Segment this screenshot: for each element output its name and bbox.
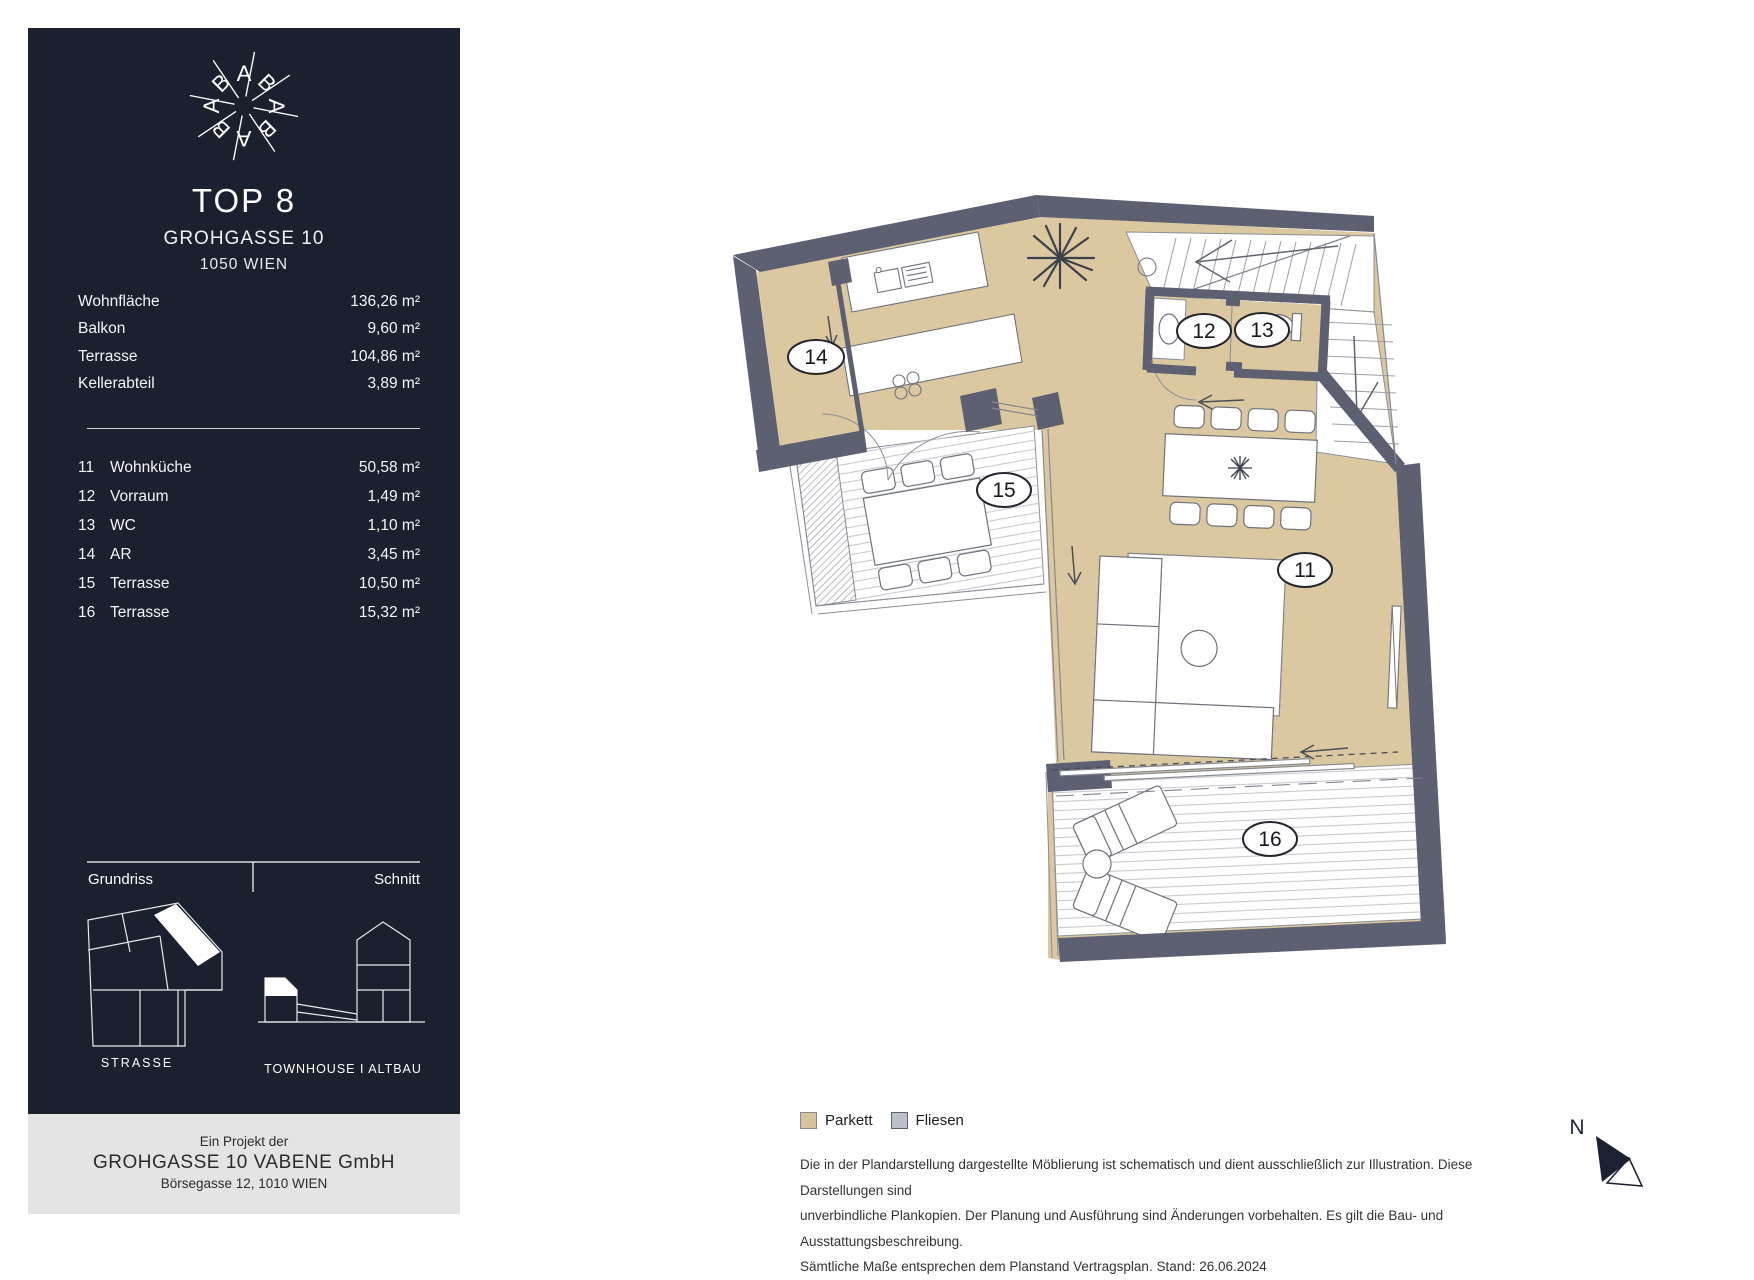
- north-label: N: [1569, 1116, 1584, 1139]
- room-label: Terrasse: [110, 604, 359, 622]
- table-row: 11 Wohnküche 50,58 m²: [78, 453, 420, 482]
- room-tag-11: 11: [1294, 559, 1316, 582]
- room-number: 12: [78, 488, 110, 506]
- room-number: 11: [78, 459, 110, 477]
- table-row: Kellerabteil 3,89 m²: [78, 371, 420, 399]
- washbasin-icon: [1159, 314, 1179, 344]
- room-value: 15,32 m²: [359, 604, 420, 622]
- vabene-logo-icon: A B A B A B A B: [186, 48, 302, 164]
- townhouse-altbau-label: TOWNHOUSE I ALTBAU: [264, 1062, 422, 1076]
- room-value: 3,45 m²: [367, 546, 420, 564]
- room-number: 15: [78, 575, 110, 593]
- room-value: 1,49 m²: [367, 488, 420, 506]
- area-label: Balkon: [78, 320, 367, 338]
- floor-plan: 14 12 13 15 11 16: [600, 150, 1480, 1030]
- room-label: Wohnküche: [110, 459, 359, 477]
- table-row: 15 Terrasse 10,50 m²: [78, 569, 420, 598]
- room-list-table: 11 Wohnküche 50,58 m² 12 Vorraum 1,49 m²…: [78, 453, 420, 627]
- fliesen-swatch-icon: [891, 1112, 908, 1129]
- disclaimer-line: Die in der Plandarstellung dargestellte …: [800, 1152, 1480, 1203]
- area-value: 3,89 m²: [367, 375, 420, 393]
- svg-text:B: B: [253, 115, 281, 143]
- unit-title: TOP 8: [28, 182, 460, 220]
- highlighted-floor: [265, 978, 297, 996]
- room-tag-13: 13: [1250, 319, 1273, 342]
- table-row: 13 WC 1,10 m²: [78, 511, 420, 540]
- disclaimer-line: unverbindliche Plankopien. Der Planung u…: [800, 1203, 1480, 1254]
- legend-item-fliesen: Fliesen: [891, 1112, 964, 1129]
- svg-text:B: B: [253, 69, 281, 97]
- room-value: 1,10 m²: [367, 517, 420, 535]
- room-tag-16: 16: [1258, 828, 1281, 851]
- table-row: 14 AR 3,45 m²: [78, 540, 420, 569]
- footer-intro: Ein Projekt der: [28, 1134, 460, 1149]
- area-value: 136,26 m²: [350, 293, 420, 311]
- coffee-table: [1180, 630, 1218, 668]
- svg-text:B: B: [207, 115, 235, 143]
- strasse-label: STRASSE: [101, 1056, 173, 1070]
- legend-label: Parkett: [825, 1112, 873, 1129]
- room-number: 16: [78, 604, 110, 622]
- floor-legend: Parkett Fliesen: [800, 1112, 964, 1129]
- info-sidebar: A B A B A B A B TOP 8 GROHGASSE 10 1050 …: [28, 28, 460, 1114]
- north-arrow-icon: N: [1540, 1098, 1660, 1203]
- grundriss-label: Grundriss: [88, 871, 153, 888]
- table-plant-icon: [1228, 456, 1252, 480]
- project-address: GROHGASSE 10: [28, 228, 460, 250]
- table-row: Balkon 9,60 m²: [78, 316, 420, 344]
- parkett-swatch-icon: [800, 1112, 817, 1129]
- footer-company: GROHGASSE 10 VABENE GmbH: [28, 1152, 460, 1174]
- table-row: Wohnfläche 136,26 m²: [78, 288, 420, 316]
- room-number: 13: [78, 517, 110, 535]
- project-city: 1050 WIEN: [28, 256, 460, 274]
- room-label: AR: [110, 546, 367, 564]
- area-label: Kellerabteil: [78, 375, 367, 393]
- room-tag-14: 14: [804, 346, 828, 369]
- plan-disclaimer: Die in der Plandarstellung dargestellte …: [800, 1152, 1480, 1280]
- grundriss-mini-map: [88, 903, 222, 1046]
- svg-text:A: A: [264, 99, 289, 114]
- svg-text:B: B: [207, 69, 235, 97]
- project-footer: Ein Projekt der GROHGASSE 10 VABENE GmbH…: [28, 1114, 460, 1214]
- area-summary-table: Wohnfläche 136,26 m² Balkon 9,60 m² Terr…: [78, 288, 420, 398]
- svg-text:A: A: [236, 126, 251, 151]
- room-label: Terrasse: [110, 575, 359, 593]
- area-label: Wohnfläche: [78, 293, 350, 311]
- sidebar-divider: [87, 428, 420, 429]
- logo-letters: A B A B A B A B: [199, 61, 289, 151]
- legend-label: Fliesen: [916, 1112, 964, 1129]
- table-row: Terrasse 104,86 m²: [78, 343, 420, 371]
- table-row: 16 Terrasse 15,32 m²: [78, 598, 420, 627]
- room-number: 14: [78, 546, 110, 564]
- location-diagrams: Grundriss Schnitt STRASSE TOWNHOUSE I AL…: [40, 830, 440, 1080]
- side-table: [1083, 850, 1111, 878]
- room-tag-12: 12: [1192, 320, 1215, 343]
- schnitt-mini-section: [258, 922, 425, 1022]
- sofa-group: [1091, 552, 1286, 760]
- legend-item-parkett: Parkett: [800, 1112, 873, 1129]
- schnitt-label: Schnitt: [374, 871, 421, 888]
- room-value: 10,50 m²: [359, 575, 420, 593]
- room-value: 50,58 m²: [359, 459, 420, 477]
- room-tag-15: 15: [992, 479, 1015, 502]
- disclaimer-line: Sämtliche Maße entsprechen dem Planstand…: [800, 1254, 1480, 1280]
- room-label: WC: [110, 517, 367, 535]
- area-label: Terrasse: [78, 348, 350, 366]
- room-label: Vorraum: [110, 488, 367, 506]
- svg-text:A: A: [237, 61, 252, 86]
- svg-text:A: A: [199, 98, 224, 113]
- table-row: 12 Vorraum 1,49 m²: [78, 482, 420, 511]
- area-value: 104,86 m²: [350, 348, 420, 366]
- area-value: 9,60 m²: [367, 320, 420, 338]
- footer-address: Börsegasse 12, 1010 WIEN: [28, 1176, 460, 1191]
